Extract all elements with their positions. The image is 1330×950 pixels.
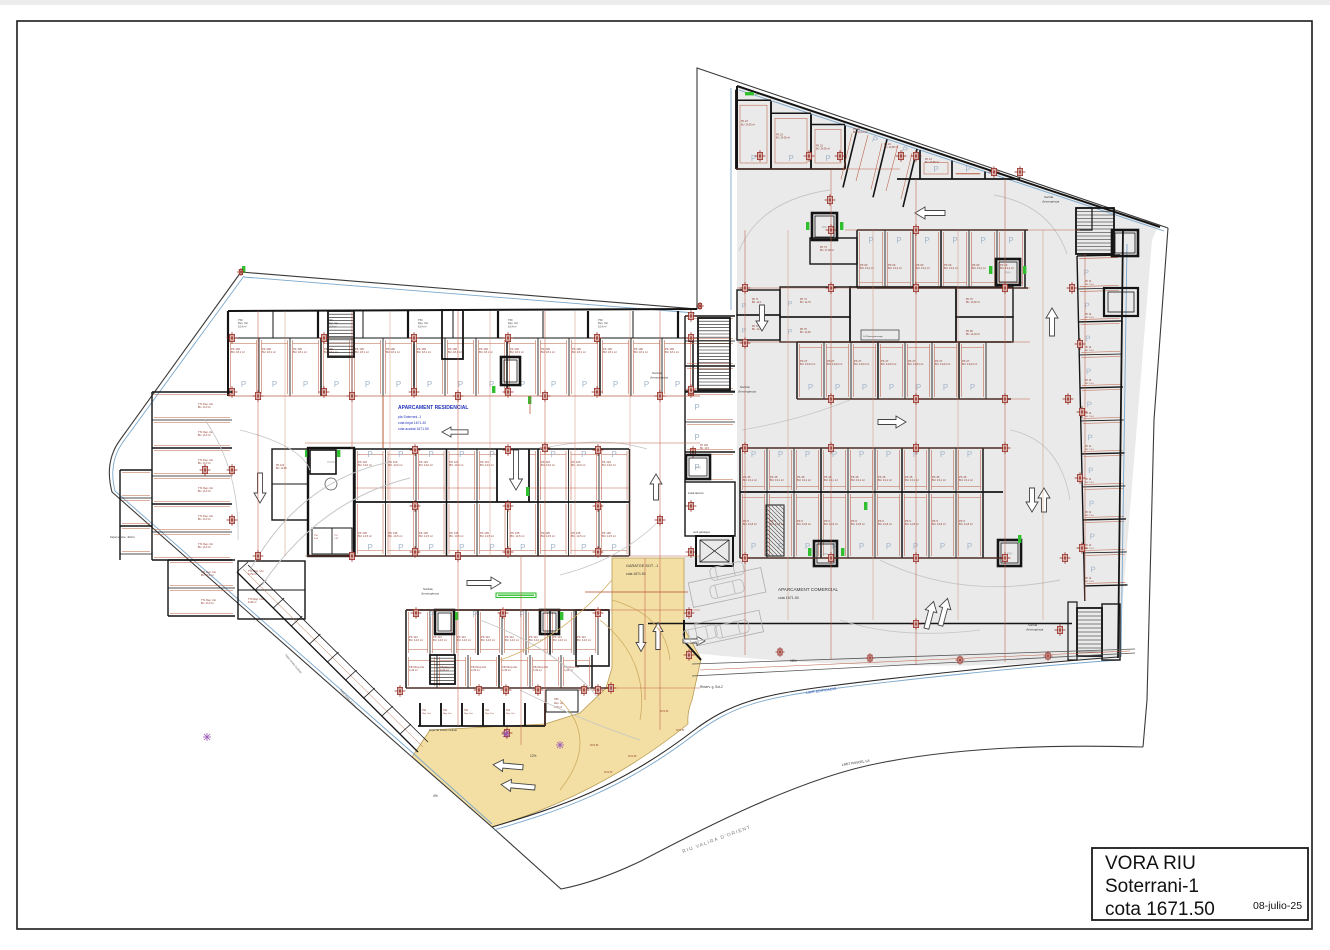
svg-text:vent garatges: vent garatges <box>693 530 711 534</box>
svg-text:Sortida: Sortida <box>423 587 433 591</box>
svg-text:BU. 13,0 m²: BU. 13,0 m² <box>450 463 464 467</box>
svg-text:P: P <box>967 450 972 459</box>
svg-text:P: P <box>398 450 403 459</box>
svg-text:cota acabat 1671.50: cota acabat 1671.50 <box>398 427 429 431</box>
svg-text:P: P <box>459 450 464 459</box>
svg-text:BU. 10,5: BU. 10,5 <box>700 448 710 450</box>
svg-text:8,14 m²: 8,14 m² <box>238 326 247 329</box>
svg-text:P: P <box>835 383 840 392</box>
svg-text:P: P <box>859 542 864 551</box>
svg-text:forjat de sostre inclinat: forjat de sostre inclinat <box>429 728 457 732</box>
svg-text:VORA RIU: VORA RIU <box>1105 853 1196 874</box>
svg-text:BU. 14,5 m²: BU. 14,5 m² <box>602 534 616 538</box>
svg-text:P: P <box>913 542 918 551</box>
svg-text:P: P <box>751 542 756 551</box>
svg-text:1671.50: 1671.50 <box>628 756 637 758</box>
svg-text:P: P <box>933 165 938 174</box>
svg-text:P: P <box>472 610 477 619</box>
svg-text:BU. 12,4: BU. 12,4 <box>752 329 762 331</box>
svg-text:extint: extint <box>755 93 761 96</box>
svg-text:8,49 m²: 8,49 m² <box>248 601 257 604</box>
svg-text:BU. 13,0 m²: BU. 13,0 m² <box>541 463 555 467</box>
svg-text:BU. 12,8 m²: BU. 12,8 m² <box>932 522 946 526</box>
svg-text:d'emergència: d'emergència <box>1026 628 1044 632</box>
svg-text:BU. 13,2 m²: BU. 13,2 m² <box>1000 266 1014 270</box>
svg-text:PK 71: PK 71 <box>752 298 759 301</box>
svg-text:1671.50: 1671.50 <box>660 711 669 713</box>
svg-text:forjat sostre -30cm: forjat sostre -30cm <box>110 535 135 539</box>
svg-text:BU. 13,4: BU. 13,4 <box>1085 581 1094 583</box>
svg-text:BU. 13,0 m²: BU. 13,0 m² <box>572 463 586 467</box>
svg-text:BU. 14,0 m²: BU. 14,0 m² <box>481 638 495 642</box>
svg-text:P: P <box>368 543 373 552</box>
svg-text:BU. 18,1 m²: BU. 18,1 m² <box>355 350 369 354</box>
svg-text:BU. 14,5 m²: BU. 14,5 m² <box>358 534 372 538</box>
svg-text:BU. 14,0 m²: BU. 14,0 m² <box>457 638 471 642</box>
svg-text:BU. 18,1 m²: BU. 18,1 m² <box>231 350 245 354</box>
svg-text:BU. 14,5 m²: BU. 14,5 m² <box>389 534 403 538</box>
svg-text:BU. 13,1 m²: BU. 13,1 m² <box>905 478 919 482</box>
svg-text:BU. 12,8 m²: BU. 12,8 m² <box>878 522 892 526</box>
svg-text:BU. 18,1 m²: BU. 18,1 m² <box>665 350 679 354</box>
svg-text:BU. 13,0 m²: BU. 13,0 m² <box>198 546 211 549</box>
svg-text:BU. 13,0 m²: BU. 13,0 m² <box>419 463 433 467</box>
svg-text:P: P <box>940 542 945 551</box>
svg-text:BU. 13,4: BU. 13,4 <box>1085 482 1094 484</box>
svg-text:P: P <box>788 301 793 308</box>
svg-text:PK 14: PK 14 <box>1085 446 1092 448</box>
svg-text:Reserv. g. Sot-2: Reserv. g. Sot-2 <box>700 685 723 689</box>
svg-text:1671.50: 1671.50 <box>590 745 599 747</box>
svg-text:P: P <box>788 329 793 336</box>
svg-text:BU. 14,0 m²: BU. 14,0 m² <box>505 638 519 642</box>
svg-text:8,14 m²: 8,14 m² <box>598 326 607 329</box>
svg-text:P: P <box>459 543 464 552</box>
svg-text:P: P <box>429 543 434 552</box>
svg-text:cota forjat 1671.40: cota forjat 1671.40 <box>398 421 426 425</box>
svg-text:P: P <box>694 433 699 442</box>
svg-text:P: P <box>398 543 403 552</box>
svg-text:Rep. Ust: Rep. Ust <box>485 712 494 715</box>
svg-text:BU. 18,1 m²: BU. 18,1 m² <box>262 350 276 354</box>
svg-text:P: P <box>520 543 525 552</box>
svg-text:P: P <box>581 543 586 552</box>
svg-text:BU. 13,04 m²: BU. 13,04 m² <box>908 362 923 366</box>
svg-text:P: P <box>612 450 617 459</box>
svg-text:9,79 m²: 9,79 m² <box>248 573 257 576</box>
svg-text:P: P <box>965 165 970 174</box>
svg-text:BU. 18,1 m²: BU. 18,1 m² <box>386 350 400 354</box>
svg-text:PK 14: PK 14 <box>1085 479 1092 481</box>
svg-text:BU. 13,1 m²: BU. 13,1 m² <box>878 478 892 482</box>
svg-text:BU. 18,1 m²: BU. 18,1 m² <box>417 350 431 354</box>
svg-text:d'emergència: d'emergència <box>421 592 439 596</box>
svg-text:P: P <box>427 380 432 389</box>
svg-text:BU. 13,0 m²: BU. 13,0 m² <box>389 463 403 467</box>
svg-text:BU. 13,1 m²: BU. 13,1 m² <box>797 478 811 482</box>
svg-text:BU. 13,0 m²: BU. 13,0 m² <box>198 490 211 493</box>
svg-text:P: P <box>943 383 948 392</box>
svg-text:P: P <box>519 610 524 619</box>
svg-text:P: P <box>368 450 373 459</box>
svg-text:P: P <box>303 380 308 389</box>
svg-text:P: P <box>805 450 810 459</box>
svg-text:cota 1671.50: cota 1671.50 <box>626 572 646 576</box>
svg-text:BU. 13,4: BU. 13,4 <box>1085 548 1094 550</box>
svg-text:PAV: PAV <box>822 225 828 229</box>
svg-text:BU. 12,79: BU. 12,79 <box>800 301 811 304</box>
svg-text:4,43 m²: 4,43 m² <box>502 668 511 672</box>
svg-text:PK 14: PK 14 <box>1085 545 1092 547</box>
svg-text:BU. 14,5 m²: BU. 14,5 m² <box>511 534 525 538</box>
svg-text:P: P <box>613 380 618 389</box>
svg-text:P: P <box>751 154 756 163</box>
svg-text:P: P <box>778 450 783 459</box>
svg-text:BU. 13,4: BU. 13,4 <box>1085 317 1094 319</box>
svg-text:P: P <box>967 542 972 551</box>
svg-text:P: P <box>490 450 495 459</box>
svg-text:P: P <box>1084 268 1090 277</box>
svg-text:BU. 13,4: BU. 13,4 <box>1085 350 1094 352</box>
svg-text:BU. 18,1 m²: BU. 18,1 m² <box>479 350 493 354</box>
svg-text:BU. 24,55 m²: BU. 24,55 m² <box>741 123 755 126</box>
svg-text:P: P <box>886 450 891 459</box>
svg-text:PAV: PAV <box>1005 271 1011 275</box>
svg-text:PK 14: PK 14 <box>1085 578 1092 580</box>
svg-text:BU. 13,04 m²: BU. 13,04 m² <box>935 362 950 366</box>
svg-text:BU. 13,0 m²: BU. 13,0 m² <box>480 463 494 467</box>
svg-text:BU. 18,1 m²: BU. 18,1 m² <box>572 350 586 354</box>
svg-text:Rep. Ust: Rep. Ust <box>506 712 515 715</box>
svg-text:Sortida: Sortida <box>1044 195 1054 199</box>
svg-text:Rep. Ust: Rep. Ust <box>443 712 452 715</box>
svg-text:BU. 18,1 m²: BU. 18,1 m² <box>448 350 462 354</box>
svg-text:Soterrani-1: Soterrani-1 <box>1105 876 1199 897</box>
svg-text:BU. 14,5 m²: BU. 14,5 m² <box>480 534 494 538</box>
svg-text:PAV: PAV <box>695 466 701 470</box>
svg-text:P: P <box>429 450 434 459</box>
svg-text:P: P <box>808 383 813 392</box>
svg-text:BU. 12,88: BU. 12,88 <box>276 467 287 470</box>
svg-text:BU. 13,4: BU. 13,4 <box>1085 284 1094 286</box>
svg-text:BU. 13,1 m²: BU. 13,1 m² <box>851 478 865 482</box>
svg-text:cota 1671.50: cota 1671.50 <box>778 596 799 600</box>
svg-text:PK 14: PK 14 <box>1085 380 1092 382</box>
svg-text:PK 14: PK 14 <box>1085 314 1092 316</box>
svg-text:P: P <box>1088 466 1094 475</box>
svg-text:BU. 13,1 m²: BU. 13,1 m² <box>770 478 784 482</box>
svg-text:P: P <box>644 380 649 389</box>
svg-text:P: P <box>272 380 277 389</box>
svg-text:4,43 m²: 4,43 m² <box>409 668 418 672</box>
svg-text:PK 14: PK 14 <box>1085 281 1092 283</box>
svg-text:BU. 13,0 m²: BU. 13,0 m² <box>358 463 372 467</box>
svg-text:P: P <box>365 380 370 389</box>
svg-text:4,43 m²: 4,43 m² <box>471 668 480 672</box>
svg-text:P: P <box>862 383 867 392</box>
svg-text:P: P <box>940 450 945 459</box>
svg-text:BU. 13,04 m²: BU. 13,04 m² <box>827 362 842 366</box>
svg-text:d'emergència: d'emergència <box>738 390 756 394</box>
svg-text:BU. 14,0 m²: BU. 14,0 m² <box>553 638 567 642</box>
svg-text:P: P <box>551 450 556 459</box>
svg-text:P: P <box>1090 565 1096 574</box>
svg-text:PK 72: PK 72 <box>752 325 759 328</box>
svg-text:1671.50: 1671.50 <box>604 772 613 774</box>
svg-text:Sortida: Sortida <box>652 371 662 375</box>
svg-text:Rep. Ust: Rep. Ust <box>422 712 431 715</box>
svg-text:BU. 24,55 m²: BU. 24,55 m² <box>776 136 790 139</box>
svg-text:PK 14: PK 14 <box>1085 512 1092 514</box>
svg-text:P: P <box>896 236 901 245</box>
svg-text:BU. 13,0 m²: BU. 13,0 m² <box>602 463 616 467</box>
svg-text:4%: 4% <box>433 794 438 798</box>
svg-text:BU. 13,4: BU. 13,4 <box>1085 515 1094 517</box>
svg-text:P: P <box>551 380 556 389</box>
svg-text:P: P <box>825 154 830 163</box>
svg-text:BU. 13,4: BU. 13,4 <box>1085 449 1094 451</box>
svg-text:pla Soterrani -1: pla Soterrani -1 <box>398 415 421 419</box>
svg-text:BU. 17,00 m²: BU. 17,00 m² <box>820 249 834 252</box>
svg-text:BU. 14,5 m²: BU. 14,5 m² <box>419 534 433 538</box>
svg-text:P: P <box>1087 433 1093 442</box>
svg-text:P: P <box>612 543 617 552</box>
svg-text:BU. 13,04 m²: BU. 13,04 m² <box>962 362 977 366</box>
svg-text:BU. 13,2 m²: BU. 13,2 m² <box>944 266 958 270</box>
svg-text:P: P <box>675 380 680 389</box>
svg-text:PK 109: PK 109 <box>700 444 709 447</box>
svg-text:PK 14: PK 14 <box>1085 347 1092 349</box>
svg-text:BU. 13,0 m²: BU. 13,0 m² <box>201 602 214 605</box>
svg-text:P: P <box>1086 367 1092 376</box>
svg-text:BU. 12,62: BU. 12,62 <box>800 331 811 334</box>
svg-text:P: P <box>924 236 929 245</box>
svg-text:P: P <box>241 380 246 389</box>
svg-text:P: P <box>859 450 864 459</box>
svg-text:d'emergència: d'emergència <box>650 376 668 380</box>
svg-text:P: P <box>742 328 747 335</box>
svg-text:P: P <box>916 383 921 392</box>
svg-text:4,43 m²: 4,43 m² <box>440 668 449 672</box>
svg-text:P: P <box>952 236 957 245</box>
svg-text:APARCAMENT COMERCIAL: APARCAMENT COMERCIAL <box>778 587 839 592</box>
svg-text:P: P <box>1008 236 1013 245</box>
svg-text:P: P <box>490 543 495 552</box>
svg-text:4,43 m²: 4,43 m² <box>533 668 542 672</box>
svg-text:BU. 13,4: BU. 13,4 <box>1085 416 1094 418</box>
svg-text:BU. 13,2 m²: BU. 13,2 m² <box>888 266 902 270</box>
svg-text:BU. 18,1 m²: BU. 18,1 m² <box>510 350 524 354</box>
svg-text:BU. 12,2: BU. 12,2 <box>752 302 762 304</box>
svg-text:P: P <box>694 403 699 412</box>
svg-text:BU. 12,8 m²: BU. 12,8 m² <box>905 522 919 526</box>
svg-text:P: P <box>886 542 891 551</box>
svg-text:P: P <box>334 380 339 389</box>
svg-text:Sortida: Sortida <box>1028 623 1038 627</box>
svg-text:BU. 13,0 m²: BU. 13,0 m² <box>198 462 211 465</box>
svg-text:P: P <box>1087 400 1093 409</box>
svg-text:BU. 18,1 m²: BU. 18,1 m² <box>603 350 617 354</box>
svg-text:T80: T80 <box>554 697 559 701</box>
svg-text:BU. 14,0 m²: BU. 14,0 m² <box>433 638 447 642</box>
svg-text:BU. 13,13 m²: BU. 13,13 m² <box>853 131 867 134</box>
svg-text:BU. 12,8 m²: BU. 12,8 m² <box>959 522 973 526</box>
svg-text:P: P <box>980 236 985 245</box>
svg-text:8,14 m²: 8,14 m² <box>418 326 427 329</box>
svg-text:BU. 14,5 m²: BU. 14,5 m² <box>541 534 555 538</box>
svg-text:BU. 13,4: BU. 13,4 <box>1085 383 1094 385</box>
svg-text:P: P <box>458 380 463 389</box>
svg-text:BU. 13,0 m²: BU. 13,0 m² <box>198 434 211 437</box>
svg-text:BU. 14,0 m²: BU. 14,0 m² <box>409 638 423 642</box>
svg-text:BU. 12,8 m²: BU. 12,8 m² <box>851 522 865 526</box>
svg-text:BU. 18,1 m²: BU. 18,1 m² <box>634 350 648 354</box>
svg-text:BU. 13,2 m²: BU. 13,2 m² <box>972 266 986 270</box>
svg-text:BU. 14,5 m²: BU. 14,5 m² <box>450 534 464 538</box>
svg-text:BU. 13,04 m²: BU. 13,04 m² <box>800 362 815 366</box>
svg-text:PANS: PANS <box>327 460 335 464</box>
svg-text:BU. 18,1 m²: BU. 18,1 m² <box>324 350 338 354</box>
svg-text:08-julio-25: 08-julio-25 <box>1253 900 1302 912</box>
svg-text:BU. 13,0 m²: BU. 13,0 m² <box>198 518 211 521</box>
svg-text:P: P <box>742 303 747 310</box>
svg-text:P: P <box>582 380 587 389</box>
svg-text:Rep. Ust: Rep. Ust <box>464 712 473 715</box>
svg-text:P: P <box>581 450 586 459</box>
svg-text:BU. 12,8 m²: BU. 12,8 m² <box>797 522 811 526</box>
svg-text:BU. 18,1 m²: BU. 18,1 m² <box>293 350 307 354</box>
svg-text:BU. 18,1 m²: BU. 18,1 m² <box>541 350 555 354</box>
svg-text:BU. 13,00 m²: BU. 13,00 m² <box>966 301 980 304</box>
svg-text:BU. 14,04 m²: BU. 14,04 m² <box>966 333 980 336</box>
svg-text:P: P <box>788 154 793 163</box>
svg-text:BU. 13,1 m²: BU. 13,1 m² <box>959 478 973 482</box>
svg-text:BU. 13,04 m²: BU. 13,04 m² <box>881 362 896 366</box>
svg-text:BU. 13,0 m²: BU. 13,0 m² <box>198 406 211 409</box>
svg-text:P: P <box>396 380 401 389</box>
svg-text:GARATGE SOT. -1: GARATGE SOT. -1 <box>626 564 658 568</box>
svg-text:BU. 13,0 m²: BU. 13,0 m² <box>201 574 214 577</box>
svg-text:BU. 12,88 m²: BU. 12,88 m² <box>884 146 898 149</box>
svg-text:BU. 13,04 m²: BU. 13,04 m² <box>854 362 869 366</box>
svg-text:BU. 13,1 m²: BU. 13,1 m² <box>932 478 946 482</box>
svg-text:BU. 14,5 m²: BU. 14,5 m² <box>572 534 586 538</box>
svg-text:P: P <box>889 383 894 392</box>
svg-text:d'emergència: d'emergència <box>1042 200 1060 204</box>
svg-text:P: P <box>751 450 756 459</box>
svg-text:instal·lacions: instal·lacions <box>688 491 704 495</box>
svg-text:8,14 m²: 8,14 m² <box>508 326 517 329</box>
svg-text:P: P <box>1089 499 1095 508</box>
svg-text:PAV: PAV <box>823 552 829 556</box>
svg-text:P: P <box>551 543 556 552</box>
svg-text:1.02 Emmagatzematge: 1.02 Emmagatzematge <box>863 335 883 338</box>
svg-text:BU. 25,86 m²: BU. 25,86 m² <box>925 161 939 164</box>
svg-text:BU. 13,2 m²: BU. 13,2 m² <box>860 266 874 270</box>
svg-text:P: P <box>970 383 975 392</box>
svg-text:BU. 13,2 m²: BU. 13,2 m² <box>916 266 930 270</box>
svg-text:1671.50: 1671.50 <box>676 730 685 732</box>
svg-text:BU. 14,0 m²: BU. 14,0 m² <box>577 638 591 642</box>
svg-text:cota 1671.50: cota 1671.50 <box>1105 899 1215 920</box>
svg-text:BU. 24,55 m²: BU. 24,55 m² <box>816 148 830 151</box>
svg-text:PK 14: PK 14 <box>1085 413 1092 415</box>
svg-text:P: P <box>1090 532 1096 541</box>
svg-text:12%: 12% <box>530 754 537 758</box>
svg-text:P: P <box>1085 334 1091 343</box>
svg-text:18%: 18% <box>790 659 797 663</box>
